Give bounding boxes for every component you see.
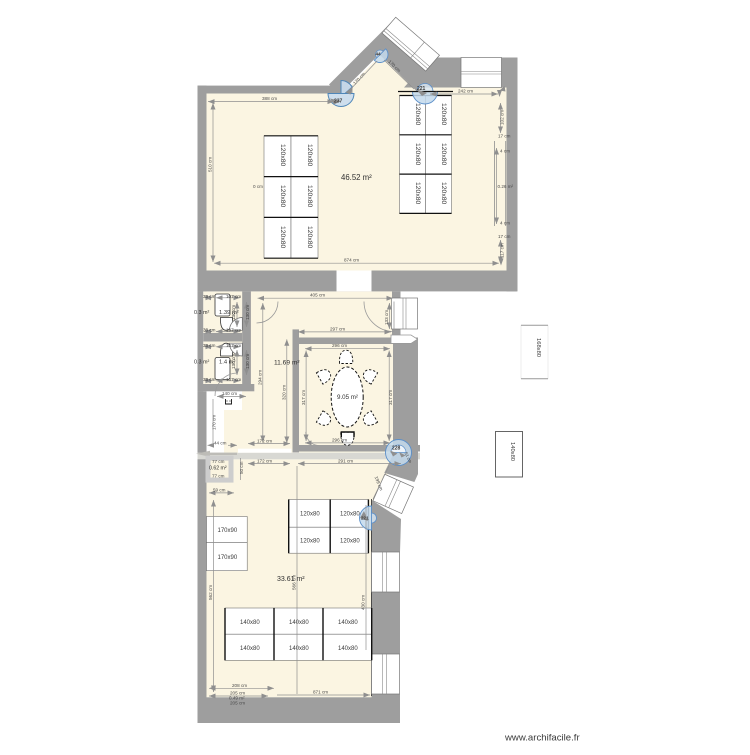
svg-text:317 cm: 317 cm xyxy=(301,390,306,405)
svg-text:17 cm: 17 cm xyxy=(498,134,511,139)
svg-text:107 cm: 107 cm xyxy=(226,343,241,348)
svg-text:172 cm: 172 cm xyxy=(257,438,272,443)
svg-text:170x90: 170x90 xyxy=(218,555,238,561)
svg-text:140 cm: 140 cm xyxy=(222,391,237,396)
svg-text:9.05 m²: 9.05 m² xyxy=(337,394,358,401)
svg-text:59 cm: 59 cm xyxy=(213,487,226,492)
svg-text:120x80: 120x80 xyxy=(414,143,421,166)
svg-text:107 cm: 107 cm xyxy=(226,294,241,299)
svg-text:205 cm: 205 cm xyxy=(230,700,245,705)
svg-text:33 cm: 33 cm xyxy=(203,328,216,333)
svg-text:33.61 m²: 33.61 m² xyxy=(277,576,305,583)
svg-text:120x80: 120x80 xyxy=(279,226,286,249)
svg-text:44 cm: 44 cm xyxy=(214,440,227,445)
svg-text:120x80: 120x80 xyxy=(306,144,313,167)
svg-text:46.52 m²: 46.52 m² xyxy=(341,173,372,182)
svg-text:120x80: 120x80 xyxy=(440,182,447,205)
svg-text:317 cm: 317 cm xyxy=(388,390,393,405)
svg-text:172 cm: 172 cm xyxy=(257,458,272,463)
svg-text:510 cm: 510 cm xyxy=(208,157,213,172)
svg-text:117 cm: 117 cm xyxy=(500,243,505,258)
svg-text:50 cm: 50 cm xyxy=(239,461,244,474)
svg-text:77 cm: 77 cm xyxy=(212,459,225,464)
svg-text:0.62 m²: 0.62 m² xyxy=(209,466,227,472)
svg-text:140x80: 140x80 xyxy=(338,646,358,652)
svg-text:120x80: 120x80 xyxy=(440,103,447,126)
svg-text:430 cm: 430 cm xyxy=(361,595,366,610)
svg-text:0.3 m²: 0.3 m² xyxy=(194,310,209,316)
svg-text:44: 44 xyxy=(376,52,382,57)
svg-text:120x80: 120x80 xyxy=(279,144,286,167)
svg-text:388 cm: 388 cm xyxy=(262,96,277,101)
svg-text:562 cm: 562 cm xyxy=(208,585,213,600)
svg-text:228: 228 xyxy=(392,446,401,452)
svg-text:120x80: 120x80 xyxy=(440,143,447,166)
svg-text:320 cm: 320 cm xyxy=(282,385,287,400)
svg-text:17 cm: 17 cm xyxy=(498,234,511,239)
svg-text:33 cm: 33 cm xyxy=(203,377,216,382)
svg-text:140x80: 140x80 xyxy=(338,620,358,626)
svg-text:107 cm: 107 cm xyxy=(226,377,241,382)
svg-text:120x80: 120x80 xyxy=(414,103,421,126)
svg-text:140x80: 140x80 xyxy=(240,646,260,652)
svg-text:102 cm: 102 cm xyxy=(500,110,505,125)
svg-text:www.archifacile.fr: www.archifacile.fr xyxy=(504,733,580,744)
svg-text:170x90: 170x90 xyxy=(218,528,238,534)
svg-text:170 cm: 170 cm xyxy=(212,415,217,430)
svg-text:120x80: 120x80 xyxy=(279,185,286,208)
svg-text:405 cm: 405 cm xyxy=(310,293,325,298)
svg-text:130 cm: 130 cm xyxy=(245,305,250,320)
svg-text:120x80: 120x80 xyxy=(306,226,313,249)
svg-text:208 cm: 208 cm xyxy=(232,683,247,688)
svg-text:133 cm: 133 cm xyxy=(384,310,389,325)
svg-text:33 cm: 33 cm xyxy=(203,343,216,348)
svg-text:1.4 m²: 1.4 m² xyxy=(219,360,235,366)
svg-text:296 cm: 296 cm xyxy=(332,343,347,348)
svg-text:120x80: 120x80 xyxy=(340,512,360,518)
svg-text:4 cm: 4 cm xyxy=(500,221,510,226)
svg-text:140x80: 140x80 xyxy=(289,620,309,626)
svg-text:221: 221 xyxy=(361,516,369,521)
svg-text:120x80: 120x80 xyxy=(306,185,313,208)
svg-text:237: 237 xyxy=(334,99,343,105)
svg-text:107 cm: 107 cm xyxy=(226,328,241,333)
svg-text:1.39 m²: 1.39 m² xyxy=(219,310,239,316)
svg-text:140x80: 140x80 xyxy=(289,646,309,652)
svg-text:120x80: 120x80 xyxy=(340,539,360,545)
svg-text:120x80: 120x80 xyxy=(300,512,320,518)
svg-text:871 cm: 871 cm xyxy=(313,690,328,695)
svg-text:0 cm: 0 cm xyxy=(253,184,263,189)
svg-text:294 cm: 294 cm xyxy=(258,370,263,385)
svg-text:11.69 m²: 11.69 m² xyxy=(274,360,300,367)
svg-text:297 cm: 297 cm xyxy=(330,327,345,332)
svg-text:0.26 m²: 0.26 m² xyxy=(498,184,514,189)
svg-text:296 cm: 296 cm xyxy=(332,437,347,442)
svg-text:221: 221 xyxy=(417,86,426,92)
svg-text:130 cm: 130 cm xyxy=(245,354,250,369)
svg-text:291 cm: 291 cm xyxy=(338,458,353,463)
svg-text:168x80: 168x80 xyxy=(535,338,541,357)
svg-text:140x80: 140x80 xyxy=(240,620,260,626)
svg-text:874 cm: 874 cm xyxy=(344,258,359,263)
svg-text:120x80: 120x80 xyxy=(300,539,320,545)
svg-text:77 cm: 77 cm xyxy=(212,474,225,479)
svg-text:4 cm: 4 cm xyxy=(500,149,510,154)
svg-text:33 cm: 33 cm xyxy=(203,294,216,299)
svg-text:120x80: 120x80 xyxy=(414,182,421,205)
svg-text:0.3 m²: 0.3 m² xyxy=(194,360,209,366)
svg-text:242 cm: 242 cm xyxy=(458,89,473,94)
svg-text:140x80: 140x80 xyxy=(509,442,515,461)
